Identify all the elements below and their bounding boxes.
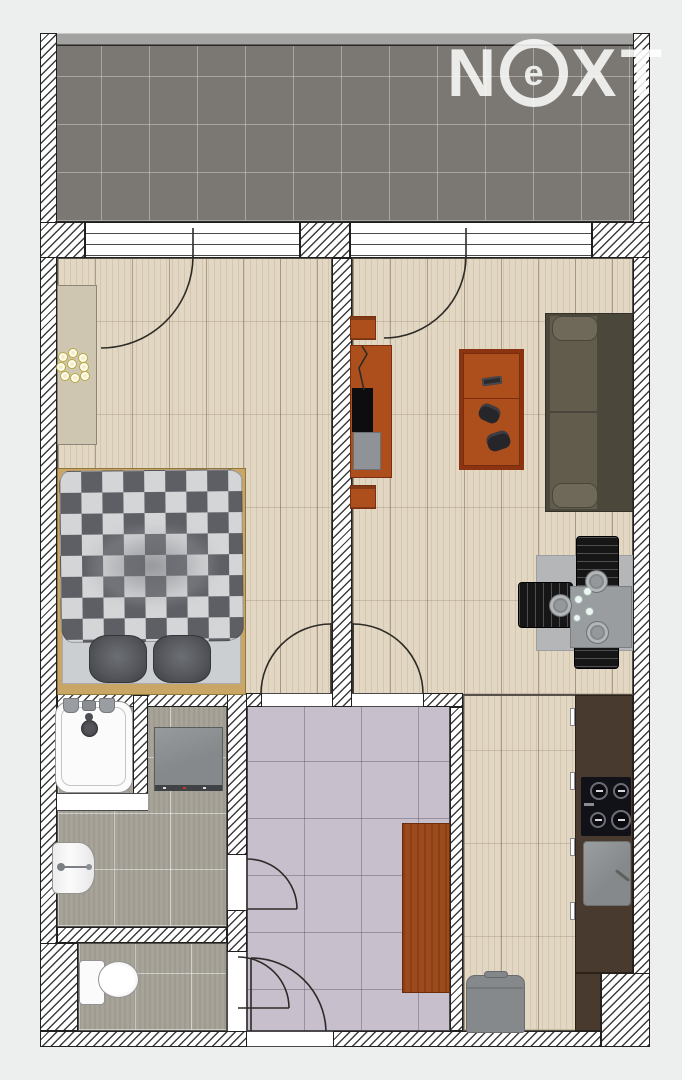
washing-machine — [154, 727, 223, 791]
cabinet-handle — [570, 708, 575, 726]
kitchen-counter-lower — [575, 973, 601, 1031]
wall-bedroom-living — [332, 258, 352, 707]
burner-bottom-left — [590, 812, 606, 828]
washer-knob — [183, 787, 186, 789]
shower-tray — [55, 701, 133, 793]
wall-bathroom-hallway-upper — [227, 693, 247, 855]
washer-knob — [203, 787, 206, 789]
shower-spout — [85, 713, 93, 721]
logo-letter-e-ring: e — [500, 39, 568, 107]
cup-2 — [583, 587, 592, 596]
wall-bottom-right-corner — [601, 973, 650, 1047]
duvet-fold-shading — [86, 525, 217, 608]
wc-door-opening — [227, 952, 247, 1031]
floor-plan-canvas: N e X T — [0, 0, 682, 1080]
burner-top-left — [590, 782, 608, 800]
shower-tray-inner — [61, 707, 126, 786]
cup-3 — [585, 607, 594, 616]
wall-bathroom-wc — [57, 927, 227, 943]
sink-drain-dot — [86, 864, 92, 870]
washer-knob — [163, 787, 166, 789]
window-pier-right — [592, 222, 650, 258]
bedroom-door-opening — [262, 693, 332, 707]
cooktop-controls — [584, 803, 594, 806]
flower-icon — [60, 371, 70, 381]
burner-top-right — [613, 783, 629, 799]
double-bed — [57, 468, 246, 695]
sofa — [545, 313, 633, 512]
kitchen-faucet — [615, 869, 630, 882]
wall-hallway-kitchen — [450, 707, 463, 1031]
kitchen-sink — [583, 841, 631, 906]
logo-letter-n: N — [447, 34, 497, 112]
sofa-seam — [550, 411, 597, 413]
logo-letter-t: T — [620, 34, 663, 112]
cabinet-handle — [570, 838, 575, 856]
window-pier-middle — [300, 222, 350, 258]
burner-bottom-right — [611, 810, 631, 830]
washer-control-panel — [155, 785, 222, 791]
shower-threshold — [57, 793, 148, 811]
flower-bouquet — [56, 348, 92, 382]
wall-bathroom-hallway-lower — [227, 910, 247, 952]
next-logo: N e X T — [447, 34, 663, 112]
window-pier-left — [40, 222, 85, 258]
coffee-table-divider — [463, 398, 520, 399]
plate-bottom — [586, 621, 609, 644]
bed-duvet — [59, 469, 244, 643]
shower-faucet-left — [63, 698, 79, 713]
flower-icon — [58, 352, 68, 362]
living-room-door-opening — [352, 693, 423, 707]
gamepad-1 — [476, 401, 502, 425]
tv — [352, 388, 373, 432]
wardrobe — [402, 823, 450, 993]
sofa-armrest-top — [552, 316, 598, 341]
plate-left — [549, 594, 572, 617]
logo-letter-x: X — [571, 34, 617, 112]
wall-left — [40, 33, 57, 1047]
wall-right — [633, 33, 650, 975]
remote-control — [482, 376, 503, 387]
flower-icon — [80, 371, 90, 381]
shower-mixer — [82, 700, 96, 711]
cabinet-handle — [570, 902, 575, 920]
cup-1 — [574, 595, 583, 604]
logo-letter-e: e — [524, 52, 545, 94]
speaker-bottom — [350, 485, 376, 509]
trash-bin-handle — [484, 971, 508, 978]
flower-icon — [68, 348, 78, 358]
bathroom-sink — [52, 842, 95, 894]
wall-shower-partition — [133, 695, 148, 795]
wall-bottom-left — [40, 1031, 247, 1047]
speaker-top — [350, 316, 376, 340]
shower-drain — [81, 720, 98, 737]
bathroom-door-opening — [227, 855, 247, 910]
toilet-bowl — [98, 961, 139, 998]
living-room-balcony-window — [350, 222, 592, 258]
cup-4 — [573, 614, 581, 622]
sofa-armrest-bottom — [552, 483, 598, 508]
cabinet-handle — [570, 772, 575, 790]
coffee-table — [459, 349, 524, 470]
shower-faucet-right — [99, 698, 115, 713]
entry-door-opening — [247, 1031, 333, 1047]
tv-stand — [353, 432, 381, 470]
flower-icon — [70, 373, 80, 383]
bed-pillow-left — [89, 635, 147, 683]
bed-pillow-right — [153, 635, 211, 683]
flower-icon — [67, 359, 77, 369]
gamepad-2 — [485, 429, 512, 453]
wall-wc-left — [40, 943, 78, 1031]
trash-bin — [466, 975, 525, 1033]
wall-hallway-top-right — [423, 693, 463, 707]
cooktop — [581, 777, 631, 836]
bedroom-balcony-window — [85, 222, 300, 258]
wall-bottom-middle — [333, 1031, 601, 1047]
trash-bin-lid-line — [467, 987, 523, 989]
